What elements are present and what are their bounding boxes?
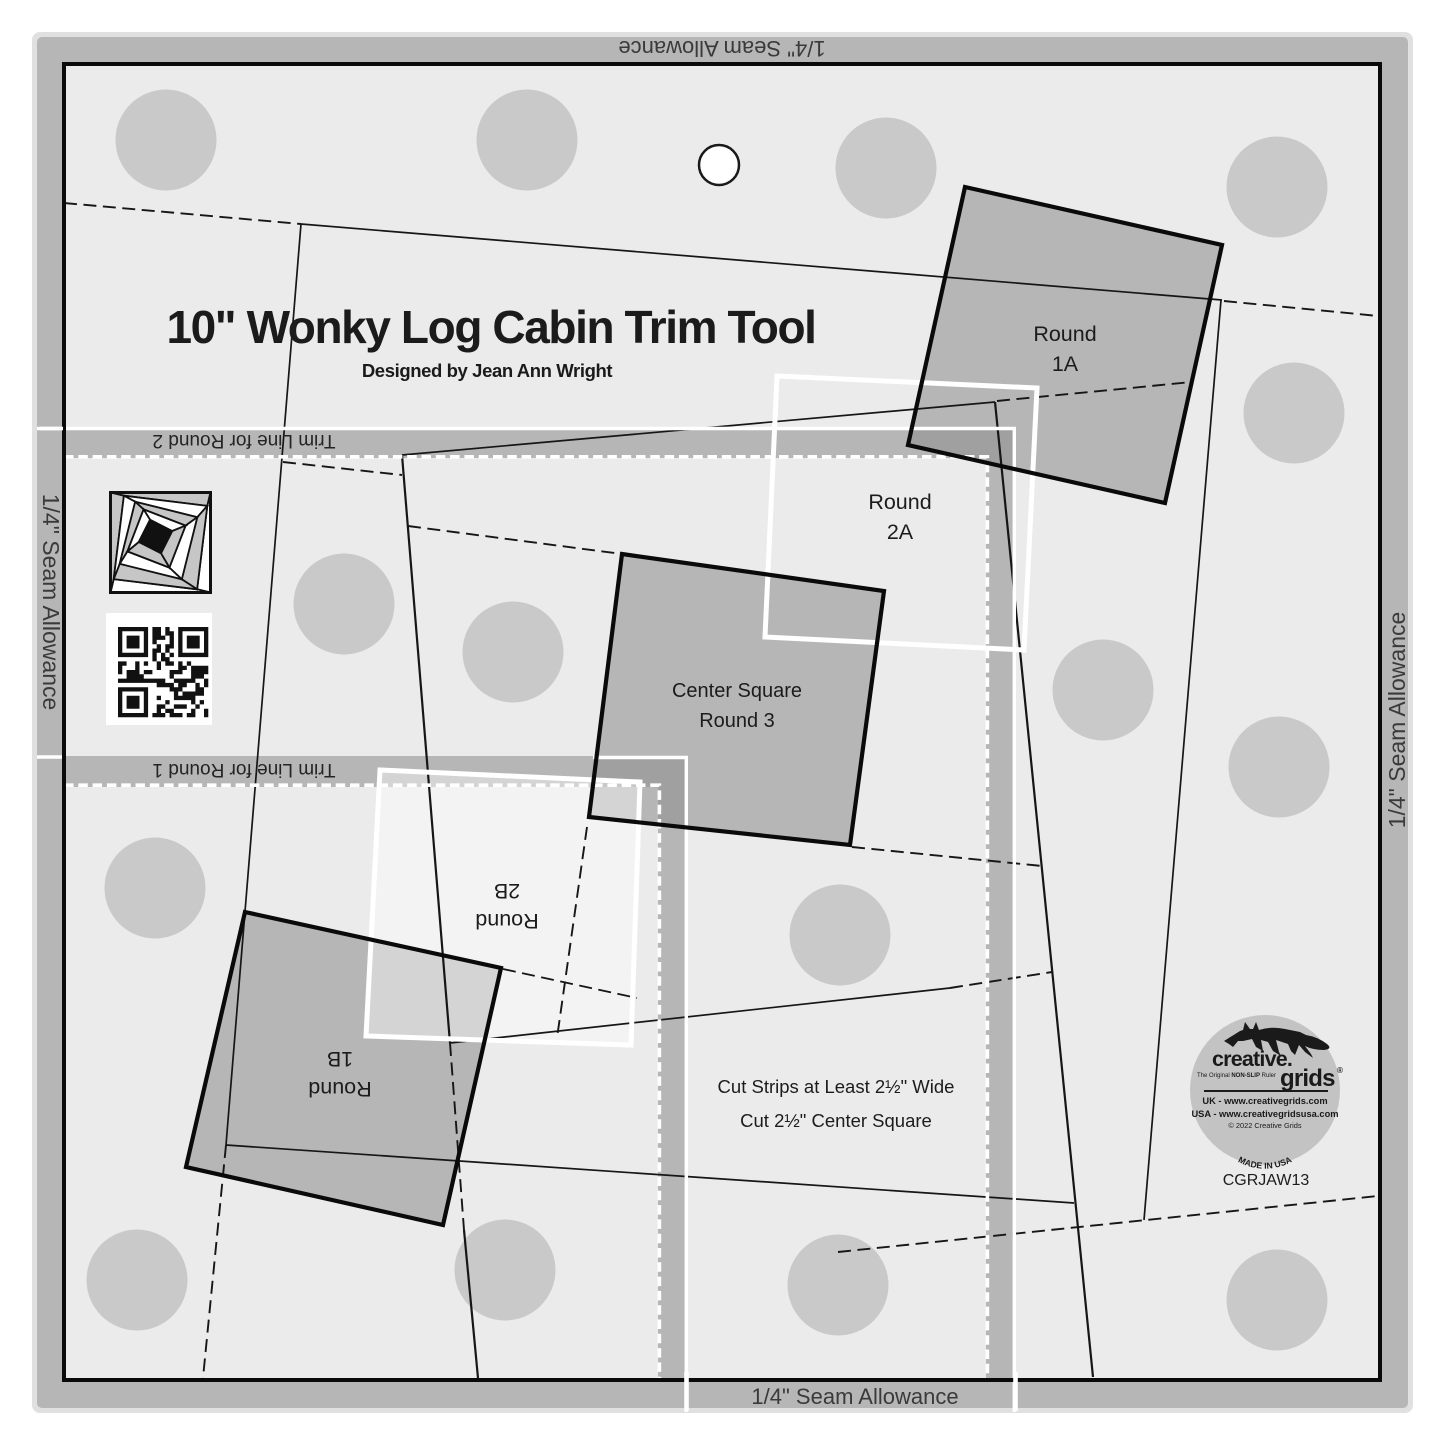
svg-text:1/4" Seam Allowance: 1/4" Seam Allowance: [751, 1384, 958, 1409]
svg-text:Cut Strips at Least 2½" Wide: Cut Strips at Least 2½" Wide: [718, 1076, 955, 1097]
svg-text:1/4" Seam Allowance: 1/4" Seam Allowance: [38, 494, 64, 711]
svg-text:1A: 1A: [1052, 352, 1079, 376]
svg-text:USA - www.creativegridsusa.com: USA - www.creativegridsusa.com: [1191, 1109, 1338, 1119]
svg-text:1/4" Seam Allowance: 1/4" Seam Allowance: [618, 36, 825, 61]
svg-text:2B: 2B: [494, 879, 520, 903]
svg-text:Trim Line for Round 1: Trim Line for Round 1: [152, 759, 335, 780]
svg-text:Center Square: Center Square: [672, 680, 802, 702]
svg-text:1/4" Seam Allowance: 1/4" Seam Allowance: [1384, 612, 1410, 829]
svg-text:Round: Round: [475, 909, 538, 933]
svg-text:Designed by Jean Ann Wright: Designed by Jean Ann Wright: [362, 360, 613, 381]
svg-text:2A: 2A: [887, 520, 914, 544]
svg-text:Round: Round: [868, 490, 931, 514]
svg-text:Round: Round: [308, 1077, 371, 1101]
svg-text:grids: grids: [1280, 1065, 1335, 1092]
svg-text:10" Wonky Log Cabin Trim Tool: 10" Wonky Log Cabin Trim Tool: [166, 301, 815, 353]
svg-text:The Original NON-SLIP Ruler: The Original NON-SLIP Ruler: [1197, 1072, 1277, 1079]
svg-text:© 2022 Creative Grids: © 2022 Creative Grids: [1228, 1121, 1302, 1130]
svg-text:CGRJAW13: CGRJAW13: [1223, 1172, 1310, 1189]
svg-text:1B: 1B: [327, 1047, 353, 1071]
svg-text:UK - www.creativegrids.com: UK - www.creativegrids.com: [1202, 1096, 1327, 1106]
svg-text:Trim Line for Round 2: Trim Line for Round 2: [152, 430, 335, 451]
svg-text:Cut 2½" Center Square: Cut 2½" Center Square: [740, 1110, 932, 1131]
svg-text:®: ®: [1337, 1066, 1343, 1075]
svg-text:Round 3: Round 3: [699, 710, 775, 732]
svg-text:Round: Round: [1033, 322, 1096, 346]
